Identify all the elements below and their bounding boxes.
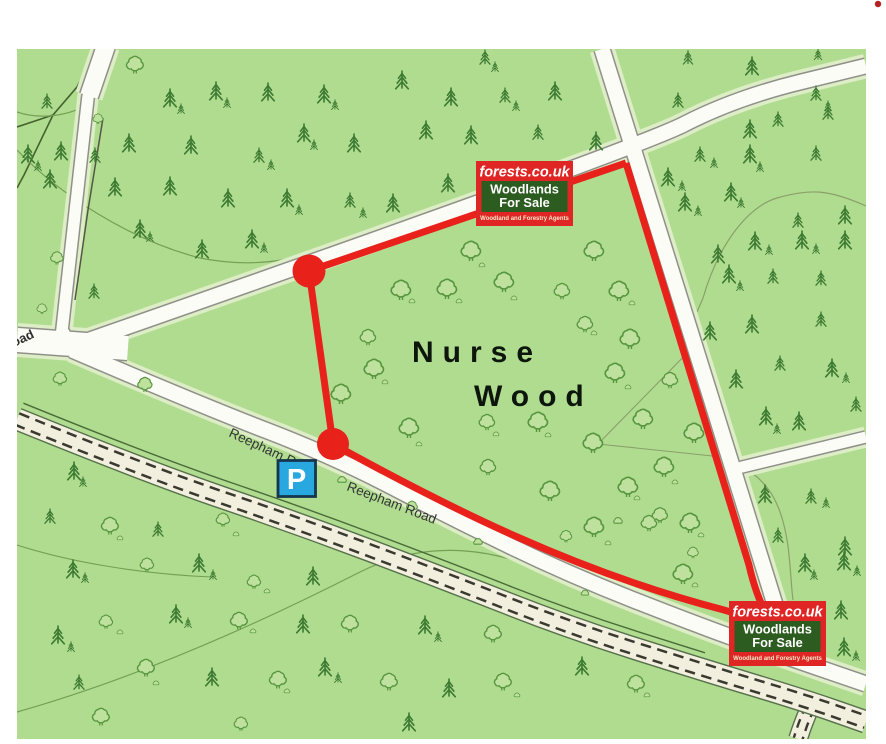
svg-text:forests.co.uk: forests.co.uk xyxy=(479,165,570,181)
svg-text:For Sale: For Sale xyxy=(499,195,550,210)
svg-text:forests.co.uk: forests.co.uk xyxy=(732,605,823,621)
svg-text:Woodland and Forestry Agents: Woodland and Forestry Agents xyxy=(480,216,569,222)
svg-text:P: P xyxy=(287,464,306,496)
svg-text:Wood: Wood xyxy=(474,380,593,413)
svg-text:For Sale: For Sale xyxy=(752,635,803,650)
svg-text:Nurse: Nurse xyxy=(412,336,542,369)
svg-text:Woodland and Forestry Agents: Woodland and Forestry Agents xyxy=(733,656,822,662)
